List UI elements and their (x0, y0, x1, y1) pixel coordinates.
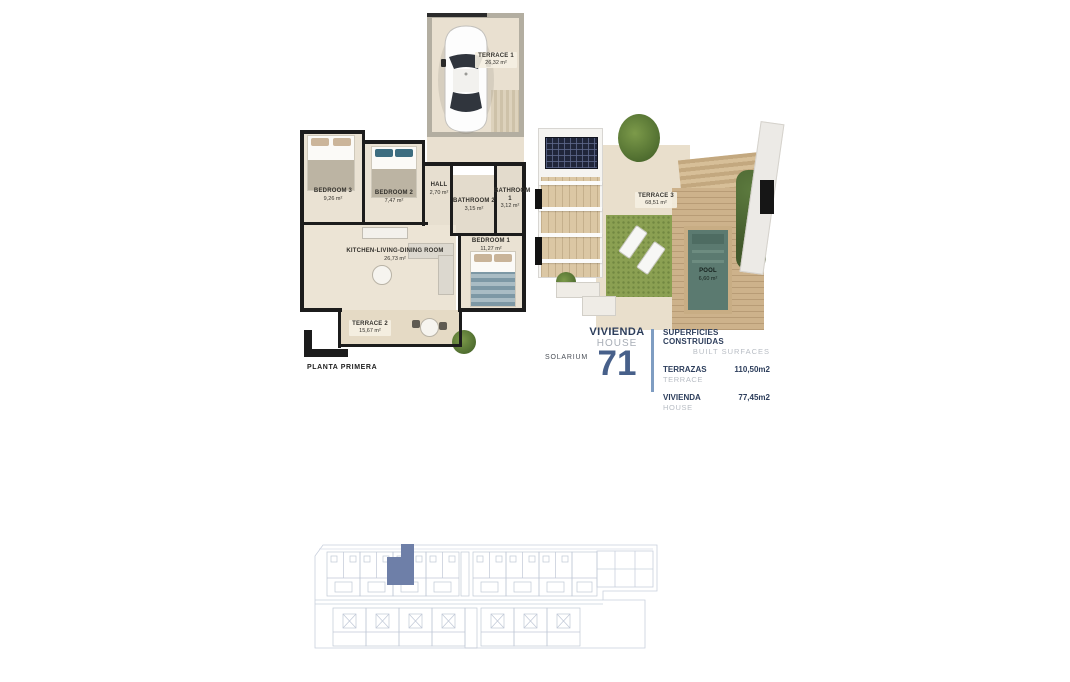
pillow (494, 254, 512, 262)
wall (300, 308, 342, 312)
room-label-bathroom-2: BATHROOM 2 3,15 m² (452, 198, 496, 212)
wall (300, 222, 428, 225)
surfaces-table: SUPERFICIES CONSTRUIDAS BUILT SURFACES T… (663, 328, 770, 412)
palm-tree (618, 114, 660, 162)
room-label-terrace-1: TERRACE 1 26,32 m² (468, 50, 524, 70)
plant (452, 330, 476, 354)
unit-id-block: VIVIENDA HOUSE 71 (586, 326, 648, 379)
room-label-kitchen: KITCHEN-LIVING-DINING ROOM 26,73 m² (335, 248, 455, 262)
wall (422, 162, 526, 166)
room-bedroom-3 (302, 132, 363, 225)
terrace-table (420, 318, 439, 337)
wall (459, 308, 462, 347)
door-mark (535, 237, 542, 265)
bed-3 (307, 135, 355, 191)
floor-caption: PLANTA PRIMERA (307, 364, 377, 371)
terrace-chair (439, 322, 447, 330)
wall (362, 140, 425, 144)
door-mark (535, 189, 542, 209)
pool-lane (692, 260, 724, 263)
blanket (308, 160, 354, 190)
room-label-bedroom-3: BEDROOM 3 9,26 m² (306, 188, 360, 202)
solarium-caption: SOLARIUM (545, 354, 588, 361)
wall (362, 130, 365, 225)
kitchen-counter (362, 227, 408, 239)
main-floor-plan: BEDROOM 3 9,26 m² BEDROOM 2 7,47 m² HALL… (300, 130, 526, 360)
terrace-chair (412, 320, 420, 328)
entry-step (582, 296, 616, 316)
wall (427, 13, 487, 17)
wall (458, 308, 526, 312)
coffee-table (372, 265, 392, 285)
car-illustration (436, 24, 496, 134)
room-label-bedroom-1: BEDROOM 1 11,27 m² (460, 238, 522, 252)
wall (338, 344, 462, 347)
blanket (471, 272, 515, 306)
pergola-beam (539, 207, 602, 211)
unit-number: 71 (586, 349, 648, 379)
wall (304, 349, 348, 357)
room-hall (425, 164, 453, 230)
surface-row-house: VIVIENDA HOUSE 77,45m2 (663, 393, 770, 412)
pool-step (692, 234, 724, 244)
surface-row-terraces: TERRAZAS TERRACE 110,50m2 (663, 365, 770, 384)
pergola-beam (539, 233, 602, 237)
solar-panel (545, 137, 598, 169)
pool-lane (692, 250, 724, 253)
solarium-plan: POOL 6,60 m² TERRACE 3 68,51 m² (538, 110, 778, 330)
room-bedroom-2 (365, 142, 422, 225)
bed-1 (470, 251, 516, 307)
pillow (474, 254, 492, 262)
title-divider (651, 329, 654, 392)
site-plan-svg (305, 536, 667, 658)
pillow (395, 149, 413, 157)
room-label-pool: POOL 6,60 m² (690, 268, 726, 282)
pillow (333, 138, 351, 146)
pillow (311, 138, 329, 146)
room-label-bathroom-1: BATHROOM 1 3,12 m² (494, 188, 526, 210)
pergola-beam (539, 259, 602, 263)
pergola-beam (539, 181, 602, 185)
room-label-bedroom-2: BEDROOM 2 7,47 m² (366, 190, 422, 204)
wall (450, 233, 526, 236)
room-label-terrace-2: TERRACE 2 15,67 m² (342, 318, 398, 338)
room-pool: POOL 6,60 m² (684, 226, 732, 314)
wall (300, 130, 304, 312)
room-label-hall: HALL 2,70 m² (424, 182, 454, 196)
highlighted-unit-71 (387, 544, 414, 585)
unit-type-es: VIVIENDA (586, 326, 648, 338)
wall (522, 162, 526, 312)
wall (338, 308, 341, 348)
pillow (375, 149, 393, 157)
surfaces-title-es: SUPERFICIES CONSTRUIDAS (663, 328, 770, 346)
room-kitchen-living (302, 225, 456, 310)
room-terrace-1: TERRACE 1 26,32 m² (427, 13, 524, 137)
floorplan-page: TERRACE 1 26,32 m² (0, 0, 1070, 682)
stair-building (538, 128, 603, 278)
wall (300, 130, 364, 134)
surfaces-title-en: BUILT SURFACES (663, 347, 770, 356)
wall-feature (760, 180, 774, 214)
room-label-terrace-3: TERRACE 3 68,51 m² (620, 190, 692, 210)
